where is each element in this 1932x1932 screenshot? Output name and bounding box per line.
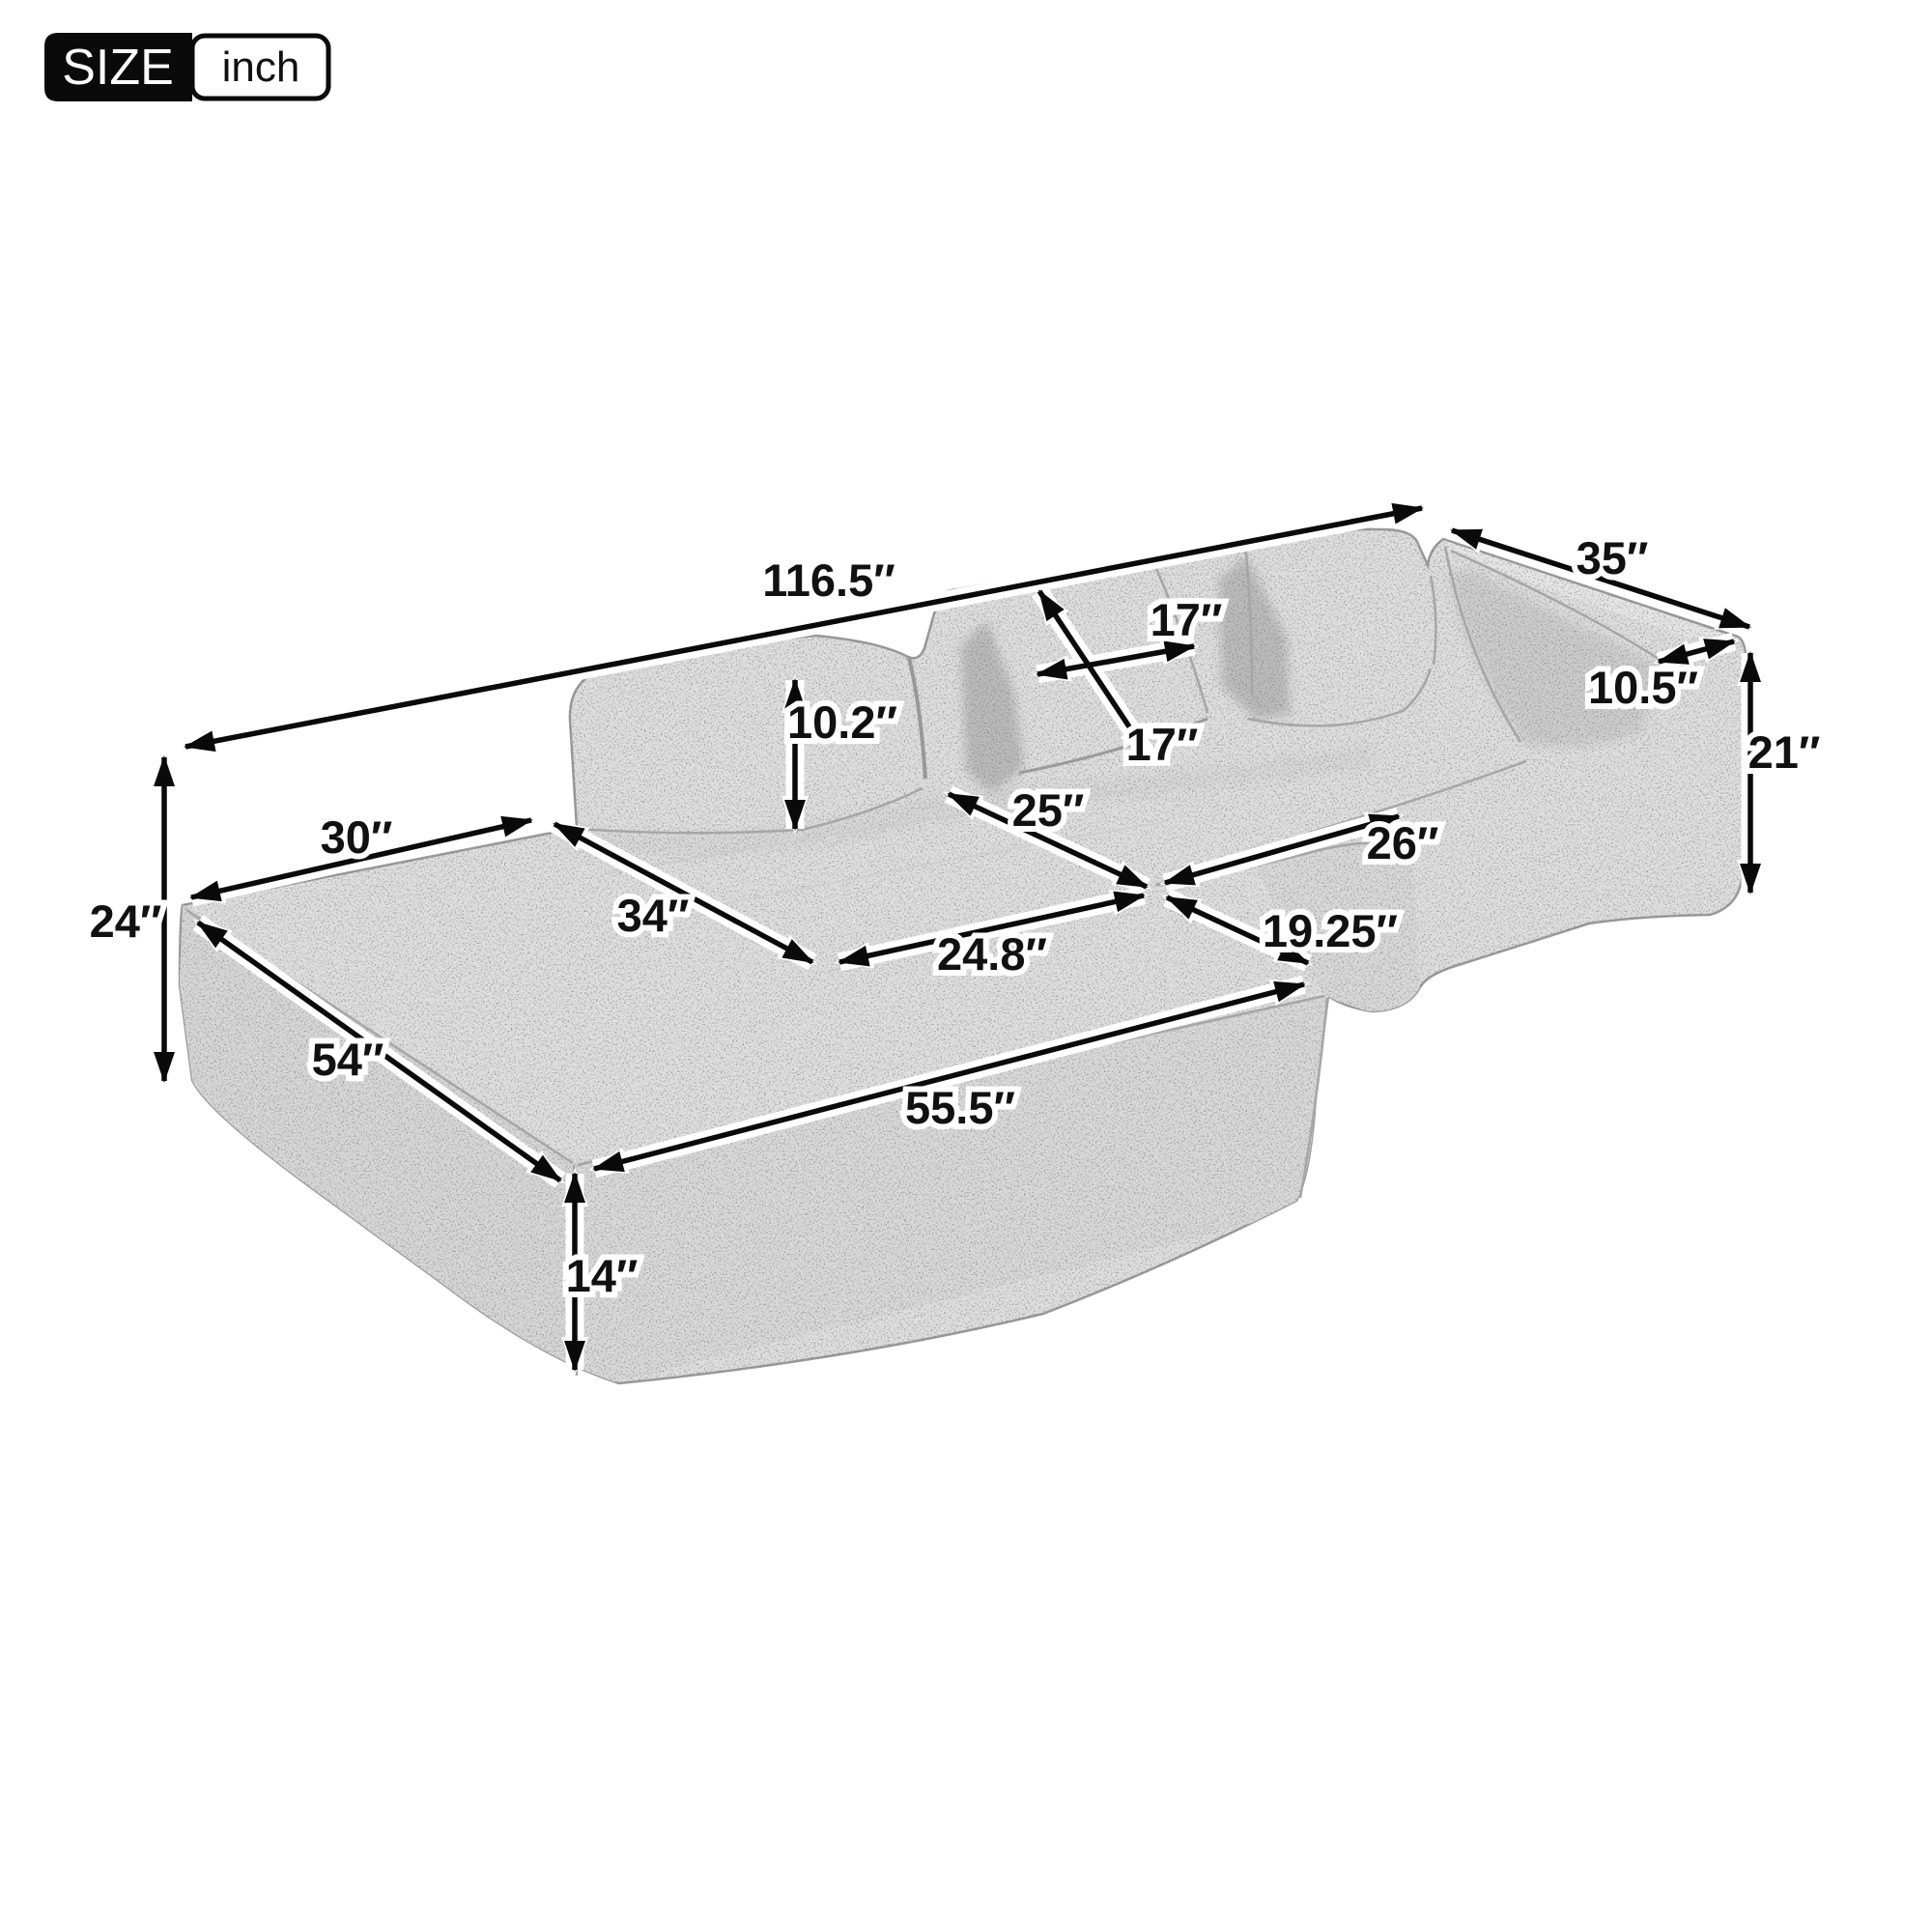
svg-text:24″: 24″: [90, 895, 162, 947]
svg-text:inch: inch: [222, 43, 300, 91]
svg-text:17″: 17″: [1151, 594, 1223, 645]
svg-text:54″: 54″: [312, 1034, 384, 1085]
svg-text:25″: 25″: [1012, 784, 1085, 836]
svg-text:10.2″: 10.2″: [787, 696, 897, 748]
svg-text:19.25″: 19.25″: [1263, 905, 1398, 956]
svg-text:17″: 17″: [1126, 719, 1199, 770]
svg-text:35″: 35″: [1577, 532, 1649, 583]
svg-text:21″: 21″: [1748, 726, 1821, 778]
svg-text:SIZE: SIZE: [62, 40, 174, 96]
svg-text:55.5″: 55.5″: [905, 1082, 1015, 1133]
svg-text:34″: 34″: [617, 890, 690, 941]
svg-text:26″: 26″: [1367, 817, 1439, 868]
svg-text:10.5″: 10.5″: [1588, 662, 1698, 713]
svg-text:116.5″: 116.5″: [762, 554, 895, 606]
svg-text:30″: 30″: [321, 811, 393, 863]
svg-text:24.8″: 24.8″: [937, 928, 1047, 980]
svg-text:14″: 14″: [566, 1250, 639, 1301]
